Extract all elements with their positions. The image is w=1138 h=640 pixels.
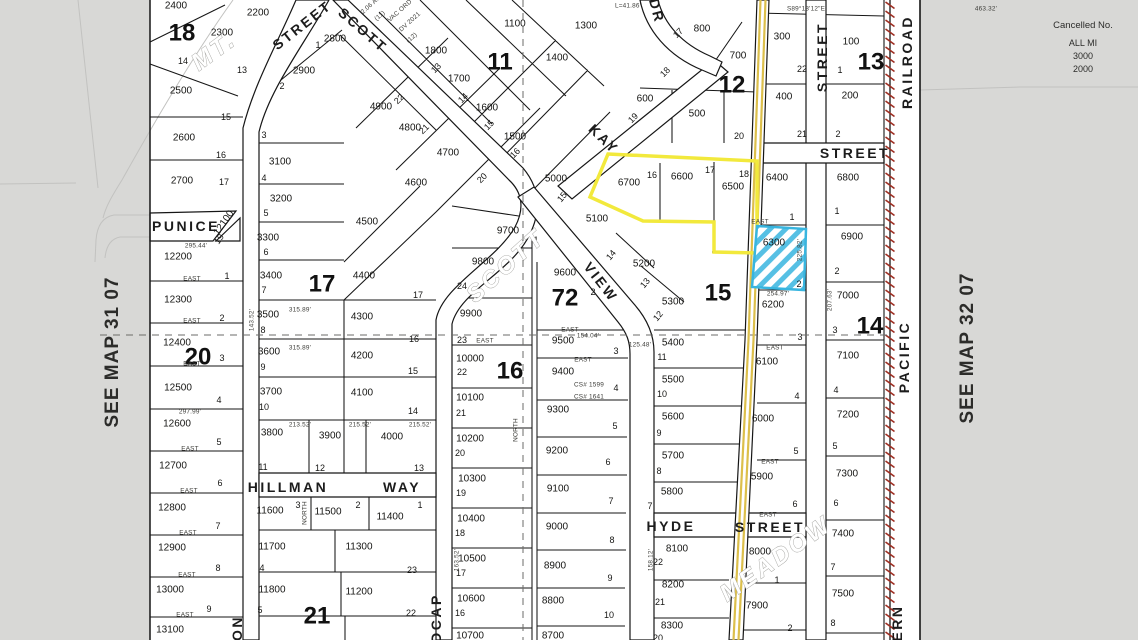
cancelled-number: 2000: [1038, 63, 1128, 76]
dimension-text-east: EAST: [574, 357, 592, 364]
dimension-text-215-52-: 215.52': [409, 422, 431, 429]
dimension-text-east: EAST: [761, 459, 779, 466]
parcel-label-4500: 4500: [356, 217, 379, 228]
dimension-text-east: EAST: [176, 612, 194, 619]
lot-number-16: 16: [409, 334, 419, 344]
dimension-text-158-12-: 158.12': [648, 549, 655, 571]
parcel-label-4300: 4300: [351, 312, 374, 323]
parcel-label-13100: 13100: [156, 625, 184, 636]
lot-number-3: 3: [613, 346, 618, 356]
lot-number-9: 9: [607, 573, 612, 583]
street-label-dcap: DCAP: [428, 593, 444, 640]
lot-number-5: 5: [832, 441, 837, 451]
lot-number-1: 1: [789, 212, 794, 222]
lot-number-11: 11: [258, 462, 267, 472]
lot-number-6: 6: [792, 499, 797, 509]
parcel-label-3100: 3100: [269, 157, 292, 168]
lot-number-18: 18: [455, 528, 465, 538]
parcel-label-12600: 12600: [163, 419, 191, 430]
parcel-label-3800: 3800: [261, 428, 284, 439]
parcel-label-6100: 6100: [756, 357, 779, 368]
parcel-label-10100: 10100: [456, 393, 484, 404]
lot-number-22: 22: [457, 367, 467, 377]
parcel-label-8300: 8300: [661, 621, 684, 632]
parcel-label-200: 200: [842, 91, 859, 102]
parcel-label-1400: 1400: [546, 53, 569, 64]
parcel-label-6900: 6900: [841, 232, 864, 243]
parcel-label-4100: 4100: [351, 388, 374, 399]
cancelled-number: ALL MI: [1038, 37, 1128, 50]
dimension-text-north: NORTH: [302, 501, 309, 525]
parcel-label-9600: 9600: [554, 268, 577, 279]
parcel-label-6700: 6700: [618, 178, 641, 189]
parcel-label-4700: 4700: [437, 148, 460, 159]
lot-number-3: 3: [219, 353, 224, 363]
lot-number-23: 23: [407, 565, 417, 575]
lot-number-6: 6: [263, 247, 268, 257]
parcel-label-5700: 5700: [662, 451, 685, 462]
dimension-text-cs-1599: CS# 1599: [574, 382, 604, 389]
lot-number-2: 2: [355, 500, 360, 510]
block-number-18: 18: [169, 20, 196, 47]
parcel-label-5000: 5000: [545, 174, 568, 185]
lot-number-10: 10: [259, 402, 269, 412]
lot-number-9: 9: [656, 428, 661, 438]
see-map-right-label: SEE MAP 32 07: [957, 272, 979, 423]
parcel-label-13000: 13000: [156, 585, 184, 596]
street-label-railroad: RAILROAD: [899, 15, 915, 109]
parcel-label-12300: 12300: [164, 295, 192, 306]
street-label-way: WAY: [383, 479, 421, 495]
parcel-label-2600: 2600: [173, 133, 196, 144]
parcel-label-9900: 9900: [460, 309, 483, 320]
parcel-label-10400: 10400: [457, 514, 485, 525]
dimension-text-east: EAST: [751, 219, 769, 226]
lot-number-21: 21: [655, 597, 665, 607]
lot-number-21: 21: [456, 408, 466, 418]
lot-number-1: 1: [834, 206, 839, 216]
parcel-label-8200: 8200: [662, 580, 685, 591]
lot-number-9: 9: [206, 604, 211, 614]
lot-number-8: 8: [215, 563, 220, 573]
parcel-label-9000: 9000: [546, 522, 569, 533]
lot-number-2: 2: [787, 623, 792, 633]
see-map-left-label: SEE MAP 31 07: [102, 276, 124, 427]
parcel-label-600: 600: [637, 94, 654, 105]
lot-number-13: 13: [237, 65, 247, 75]
parcel-label-500: 500: [689, 109, 706, 120]
lot-number-16: 16: [216, 150, 226, 160]
parcel-label-4400: 4400: [353, 271, 376, 282]
lot-number-7: 7: [830, 562, 835, 572]
dimension-text-125-48-: 125.48': [629, 342, 651, 349]
parcel-label-9200: 9200: [546, 446, 569, 457]
plat-map-page: 2400230022002500260027002800290031003200…: [0, 0, 1138, 640]
parcel-label-7300: 7300: [836, 469, 859, 480]
parcel-label-11400: 11400: [376, 512, 404, 523]
cancelled-numbers-box: Cancelled No. ALL MI 3000 2000: [1038, 20, 1128, 76]
parcel-label-10500: 10500: [458, 554, 486, 565]
parcel-label-8800: 8800: [542, 596, 565, 607]
lot-number-7: 7: [647, 501, 652, 511]
lot-number-14: 14: [178, 56, 188, 66]
parcel-label-12200: 12200: [164, 252, 192, 263]
street-label-street: STREET: [820, 145, 890, 161]
lot-number-4: 4: [613, 383, 618, 393]
lot-number-10: 10: [604, 610, 614, 620]
parcel-label-8700: 8700: [542, 631, 565, 640]
street-label-street: STREET: [814, 22, 830, 92]
parcel-label-3500: 3500: [257, 310, 280, 321]
lot-number-22: 22: [797, 64, 807, 74]
lot-number-23: 23: [457, 335, 467, 345]
lot-number-21: 21: [797, 129, 807, 139]
dimension-text-east: EAST: [766, 345, 784, 352]
block-number-13: 13: [858, 49, 885, 76]
parcel-label-9700: 9700: [497, 226, 520, 237]
street-label-pacific: PACIFIC: [896, 321, 912, 393]
dimension-text-154-04-: 154.04': [577, 333, 599, 340]
parcel-label-11800: 11800: [258, 585, 286, 596]
parcel-label-10600: 10600: [457, 594, 485, 605]
lot-number-17: 17: [219, 177, 229, 187]
lot-number-6: 6: [217, 478, 222, 488]
parcel-label-8100: 8100: [666, 544, 689, 555]
parcel-label-11500: 11500: [314, 507, 342, 518]
parcel-label-800: 800: [694, 24, 711, 35]
parcel-label-7100: 7100: [837, 351, 860, 362]
parcel-label-6600: 6600: [671, 172, 694, 183]
lot-number-18: 18: [739, 169, 749, 179]
lot-number-3: 3: [832, 325, 837, 335]
parcel-label-3600: 3600: [258, 347, 281, 358]
parcel-label-9300: 9300: [547, 405, 570, 416]
cancelled-number: 3000: [1038, 50, 1128, 63]
parcel-label-11600: 11600: [256, 506, 284, 517]
lot-number-8: 8: [609, 535, 614, 545]
dimension-text-s89-13-12-e: S89°13'12"E: [787, 5, 825, 13]
parcel-label-5900: 5900: [751, 472, 774, 483]
parcel-label-4900: 4900: [370, 102, 393, 113]
parcel-label-1700: 1700: [448, 74, 471, 85]
parcel-label-3400: 3400: [260, 271, 283, 282]
lot-number-4: 4: [216, 395, 221, 405]
lot-number-3: 3: [797, 332, 802, 342]
parcel-label-9100: 9100: [547, 484, 570, 495]
dimension-text-east: EAST: [183, 276, 201, 283]
parcel-label-2700: 2700: [171, 176, 194, 187]
lot-number-16: 16: [455, 608, 465, 618]
lot-number-5: 5: [263, 208, 268, 218]
parcel-label-6400: 6400: [766, 173, 789, 184]
parcel-label-2400: 2400: [165, 1, 188, 12]
parcel-label-7400: 7400: [832, 529, 855, 540]
lot-number-13: 13: [414, 463, 424, 473]
parcel-label-6800: 6800: [837, 173, 860, 184]
block-number-16: 16: [497, 358, 524, 385]
dimension-text-254-97-: 254.97': [767, 291, 789, 298]
lot-number-16: 16: [647, 170, 657, 180]
block-number-11: 11: [487, 49, 512, 76]
lot-number-8: 8: [656, 466, 661, 476]
parcel-label-11700: 11700: [258, 542, 286, 553]
dimension-text-315-89-: 315.89': [289, 345, 311, 352]
parcel-label-5300: 5300: [662, 297, 685, 308]
dimension-text-225-82-: 225.82': [797, 239, 804, 261]
dimension-text-east: EAST: [179, 530, 197, 537]
dimension-text-east: EAST: [183, 318, 201, 325]
block-number-21: 21: [304, 603, 331, 630]
dimension-text-207-63-: 207.63': [827, 289, 834, 311]
lot-number-4: 4: [259, 563, 264, 573]
lot-number-12: 12: [315, 463, 325, 473]
parcel-label-12800: 12800: [158, 503, 186, 514]
dimension-text-163-52-: 163.52': [454, 549, 461, 571]
lot-number-4: 4: [833, 385, 838, 395]
lot-number-3: 3: [295, 500, 300, 510]
dimension-text-east: EAST: [178, 572, 196, 579]
parcel-label-10300: 10300: [458, 474, 486, 485]
parcel-label-3700: 3700: [260, 387, 283, 398]
dimension-text-east: EAST: [183, 361, 201, 368]
dimension-text-297-99-: 297.99': [179, 409, 201, 416]
lot-number-8: 8: [260, 325, 265, 335]
parcel-label-6200: 6200: [762, 300, 785, 311]
lot-number-14: 14: [408, 406, 418, 416]
parcel-label-5800: 5800: [661, 487, 684, 498]
parcel-label-7900: 7900: [746, 601, 769, 612]
parcel-label-5600: 5600: [662, 412, 685, 423]
parcel-label-11300: 11300: [345, 542, 373, 553]
dimension-text-east: EAST: [476, 338, 494, 345]
dimension-text-east: EAST: [180, 488, 198, 495]
parcel-label-5400: 5400: [662, 338, 685, 349]
parcel-label-10000: 10000: [456, 354, 484, 365]
lot-number-19: 19: [456, 488, 466, 498]
lot-number-5: 5: [257, 605, 262, 615]
parcel-label-1600: 1600: [476, 103, 499, 114]
parcel-label-2900: 2900: [293, 66, 316, 77]
parcel-label-2800: 2800: [324, 34, 347, 45]
lot-number-5: 5: [216, 437, 221, 447]
street-label-ern: ERN: [889, 604, 905, 640]
block-number-14: 14: [857, 313, 884, 340]
parcel-label-12900: 12900: [158, 543, 186, 554]
dimension-text-east: EAST: [181, 446, 199, 453]
parcel-label-10700: 10700: [456, 631, 484, 640]
lot-number-1: 1: [417, 500, 422, 510]
lot-number-4: 4: [261, 173, 266, 183]
lot-number-7: 7: [608, 496, 613, 506]
parcel-label-300: 300: [774, 32, 791, 43]
dimension-text-213-52-: 213.52': [289, 422, 311, 429]
lot-number-20: 20: [734, 131, 744, 141]
lot-number-1: 1: [224, 271, 229, 281]
parcel-label-1500: 1500: [504, 132, 527, 143]
parcel-label-100: 100: [843, 37, 860, 48]
lot-number-8: 8: [830, 618, 835, 628]
parcel-label-11200: 11200: [345, 587, 373, 598]
dimension-text-295-44-: 295.44': [185, 243, 207, 250]
dimension-text-463-32-: 463.32': [975, 6, 997, 13]
dimension-text-l-41-86-: L=41.86': [615, 3, 641, 10]
parcel-label-5500: 5500: [662, 375, 685, 386]
dimension-text-cs-1641: CS# 1641: [574, 394, 604, 401]
parcel-label-6000: 6000: [752, 414, 775, 425]
block-number-15: 15: [705, 280, 732, 307]
lot-number-1: 1: [837, 65, 842, 75]
street-label-punice: PUNICE: [152, 218, 220, 234]
parcel-label-400: 400: [776, 92, 793, 103]
lot-number-2: 2: [835, 129, 840, 139]
dimension-text-315-89-: 315.89': [289, 307, 311, 314]
parcel-label-12700: 12700: [159, 461, 187, 472]
dimension-text-215-52-: 215.52': [349, 422, 371, 429]
lot-number-2: 2: [796, 279, 801, 289]
lot-number-7: 7: [215, 521, 220, 531]
parcel-label-4200: 4200: [351, 351, 374, 362]
lot-number-20: 20: [653, 633, 663, 640]
block-number-17: 17: [309, 271, 336, 298]
lot-number-2: 2: [279, 81, 284, 91]
parcel-label-12500: 12500: [164, 383, 192, 394]
parcel-label-9400: 9400: [552, 367, 575, 378]
lot-number-1: 1: [774, 575, 779, 585]
parcel-label-2500: 2500: [170, 86, 193, 97]
lot-number-2: 2: [590, 287, 595, 297]
parcel-label-2200: 2200: [247, 8, 270, 19]
lot-number-5: 5: [612, 421, 617, 431]
parcel-label-1300: 1300: [575, 21, 598, 32]
dimension-text-143-52-: 143.52': [249, 309, 256, 331]
parcel-label-6300: 6300: [763, 238, 786, 249]
parcel-label-6500: 6500: [722, 182, 745, 193]
lot-number-1: 1: [315, 40, 320, 50]
lot-number-6: 6: [605, 457, 610, 467]
dimension-text-east: EAST: [759, 512, 777, 519]
lot-number-6: 6: [833, 498, 838, 508]
parcel-label-3900: 3900: [319, 431, 342, 442]
parcel-label-3200: 3200: [270, 194, 293, 205]
lot-number-7: 7: [261, 285, 266, 295]
lot-number-5: 5: [793, 446, 798, 456]
lot-number-17: 17: [413, 290, 423, 300]
street-label-hyde: HYDE: [647, 518, 696, 534]
dimension-text-north: NORTH: [513, 418, 520, 442]
lot-number-11: 11: [657, 352, 666, 362]
lot-number-9: 9: [260, 362, 265, 372]
lot-number-17: 17: [705, 165, 715, 175]
block-number-72: 72: [552, 285, 579, 312]
parcel-label-1800: 1800: [425, 46, 448, 57]
parcel-label-700: 700: [730, 51, 747, 62]
parcel-label-7500: 7500: [832, 589, 855, 600]
parcel-label-10200: 10200: [456, 434, 484, 445]
lot-number-2: 2: [219, 313, 224, 323]
lot-number-10: 10: [657, 389, 667, 399]
lot-number-22: 22: [406, 608, 416, 618]
parcel-label-4000: 4000: [381, 432, 404, 443]
cancelled-title: Cancelled No.: [1038, 20, 1128, 31]
lot-number-20: 20: [455, 448, 465, 458]
lot-number-15: 15: [221, 112, 231, 122]
lot-number-4: 4: [794, 391, 799, 401]
parcel-label-3300: 3300: [257, 233, 280, 244]
parcel-label-5100: 5100: [586, 214, 609, 225]
street-label-on: ON: [229, 615, 245, 640]
lot-number-15: 15: [408, 366, 418, 376]
parcel-label-7200: 7200: [837, 410, 860, 421]
lot-number-2: 2: [834, 266, 839, 276]
parcel-label-5200: 5200: [633, 259, 656, 270]
street-label-hillman: HILLMAN: [248, 479, 329, 495]
parcel-label-8900: 8900: [544, 561, 567, 572]
lot-number-3: 3: [261, 130, 266, 140]
block-number-12: 12: [719, 72, 746, 99]
parcel-label-9500: 9500: [552, 336, 575, 347]
parcel-label-7000: 7000: [837, 291, 860, 302]
parcel-label-4600: 4600: [405, 178, 428, 189]
parcel-label-1100: 1100: [504, 19, 526, 30]
